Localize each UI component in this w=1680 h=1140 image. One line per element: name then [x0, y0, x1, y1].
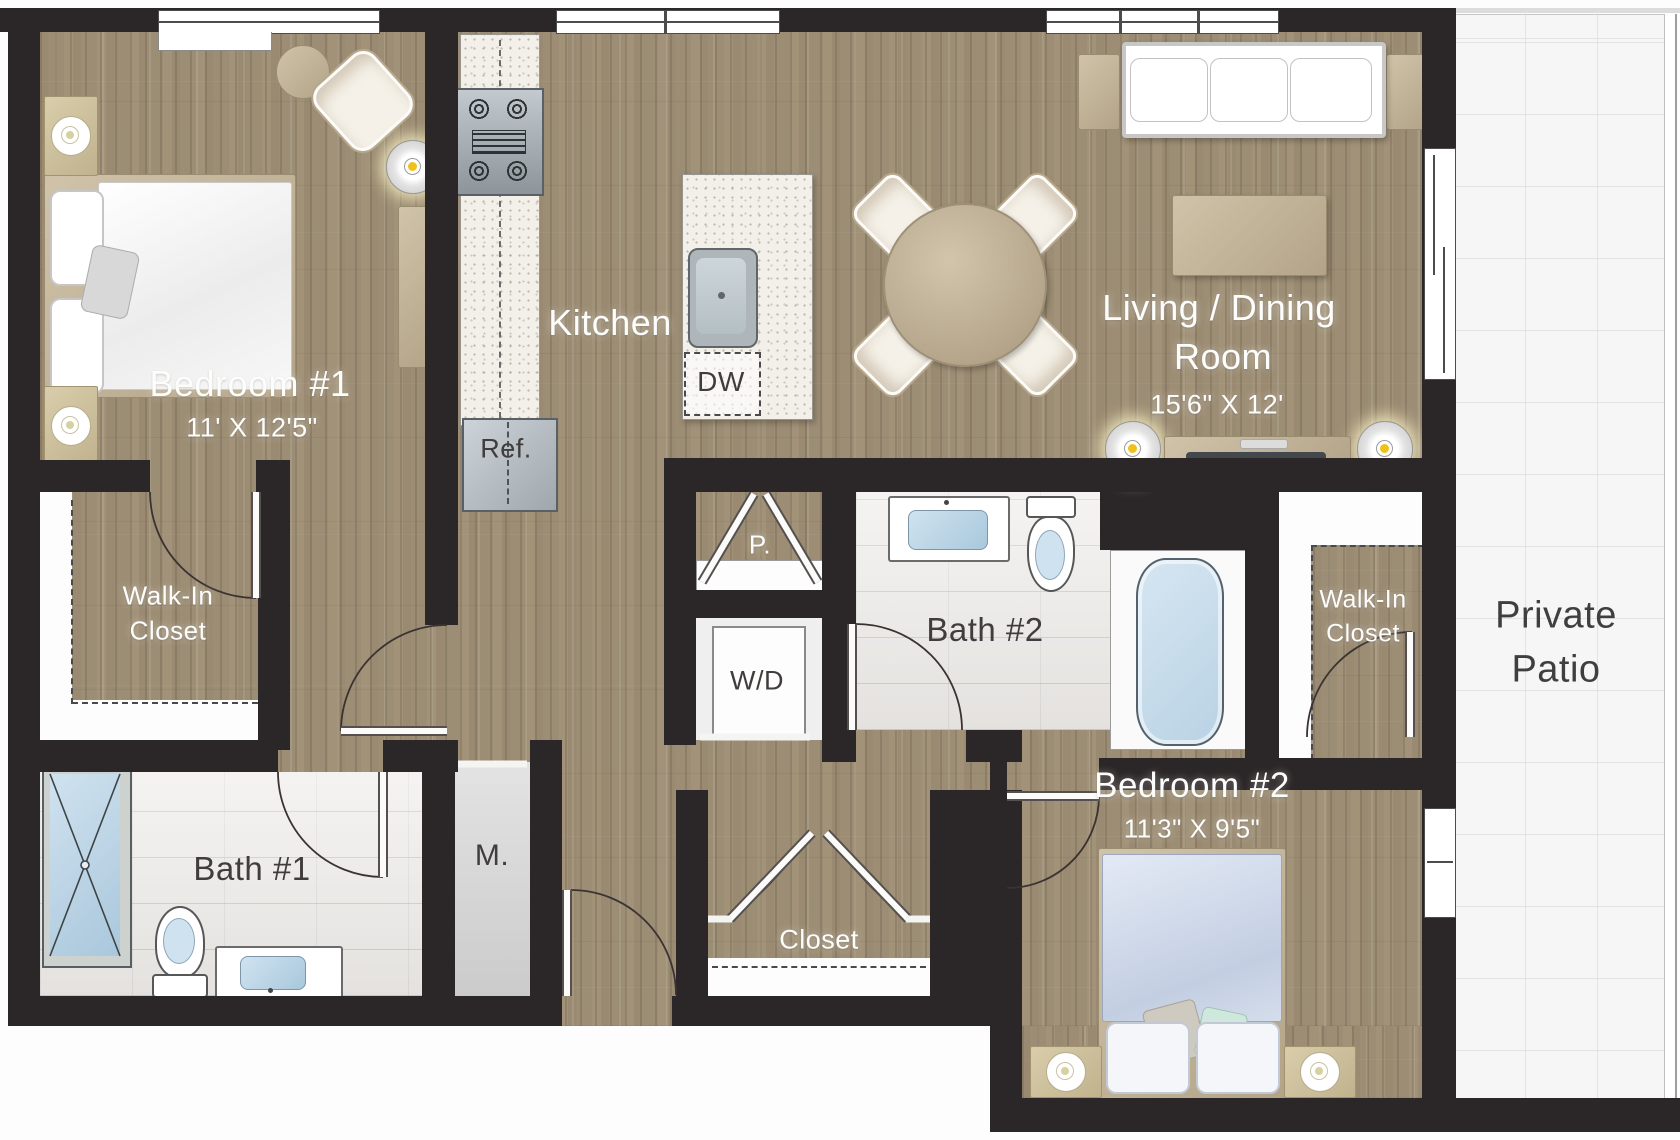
bathtub	[1136, 558, 1224, 746]
wall-bath2-bottom-a	[822, 730, 856, 762]
burner-icon	[466, 158, 492, 184]
tv-remote-tray-top	[1240, 439, 1288, 449]
kitchen-label: Kitchen	[548, 302, 672, 344]
living-dining-label-line1: Living / Dining	[1102, 287, 1336, 329]
wall-living-bottom	[664, 458, 1456, 492]
bed2-lamp-right-center	[1311, 1063, 1327, 1079]
patio-rail	[1664, 14, 1677, 1098]
bedroom1-label: Bedroom #1	[149, 363, 350, 405]
sofa-cushion	[1130, 58, 1208, 122]
living-dining-label-line2: Room	[1174, 336, 1272, 378]
bath1-label: Bath #1	[193, 850, 310, 888]
wall-pantry-laundry-divider	[696, 590, 822, 618]
window-bedroom1-sill	[158, 32, 272, 51]
wall-left	[8, 8, 40, 1026]
burner-icon	[466, 96, 492, 122]
pantry-label: P.	[749, 530, 771, 561]
bath2-faucet-dot	[944, 500, 949, 505]
window-mullion	[664, 11, 667, 33]
wic-left-label-line1: Walk-In	[123, 581, 214, 612]
bed2-lamp-left-center	[1057, 1063, 1073, 1079]
living-speaker-right-dot	[1377, 441, 1392, 456]
wall-tub-closet-divider	[1245, 492, 1279, 758]
dining-table	[883, 203, 1047, 367]
window-mullion	[1119, 11, 1122, 33]
wall-pantry-left	[664, 458, 696, 745]
wall-closet-left	[676, 790, 708, 996]
sliding-door-panel	[1433, 155, 1435, 275]
window-bedroom2	[1424, 808, 1456, 918]
shower-pan	[50, 774, 120, 956]
washer-dryer-label: W/D	[730, 666, 784, 697]
closet-label: Closet	[779, 925, 859, 956]
sofa-cushion	[1210, 58, 1288, 122]
burner-icon	[504, 158, 530, 184]
wic-left-rod-line2	[72, 702, 258, 704]
wall-bath1-top-a	[8, 740, 278, 772]
bedroom1-dimensions: 11' X 12'5"	[186, 413, 317, 444]
bed1-lamp-bottom-center	[62, 417, 78, 433]
wall-bed1-right	[425, 32, 458, 625]
sofa-side-table-right	[1386, 54, 1427, 130]
wic-right-label-line1: Walk-In	[1319, 586, 1406, 615]
wic-left-label-line2: Closet	[130, 616, 207, 647]
bath2-label: Bath #2	[926, 611, 1043, 649]
patio-label-line1: Private	[1495, 595, 1617, 638]
bath1-toilet-tank	[152, 974, 208, 998]
bath2-toilet-lid	[1035, 530, 1065, 580]
patio-floor	[1452, 14, 1666, 1100]
window-mullion	[1197, 11, 1200, 33]
floor-plan: Bedroom #1 11' X 12'5" Kitchen Living / …	[0, 0, 1680, 1140]
living-speaker-left-dot	[1125, 441, 1140, 456]
closet-rod-line	[712, 966, 926, 968]
sliding-door-panel	[1443, 247, 1445, 373]
wic-right-label-line2: Closet	[1326, 620, 1400, 649]
island-sink-drain	[718, 292, 725, 299]
wall-bed2-left	[990, 996, 1022, 1098]
wall-bottom-left	[8, 996, 562, 1026]
window-living	[1046, 10, 1279, 34]
bedroom2-label: Bedroom #2	[1094, 766, 1290, 806]
wall-bottom-bed2	[990, 1098, 1680, 1132]
living-dining-dimensions: 15'6" X 12'	[1150, 390, 1284, 421]
patio-label-line2: Patio	[1511, 649, 1600, 692]
sofa	[1122, 42, 1386, 138]
refrigerator	[462, 418, 558, 512]
window-kitchen	[556, 10, 780, 34]
bed2-blanket	[1102, 854, 1282, 1022]
mechanical-label: M.	[475, 839, 509, 873]
refrigerator-label: Ref.	[480, 434, 532, 465]
window-mullion	[1047, 21, 1278, 23]
stove	[456, 88, 544, 196]
window-bedroom1	[158, 10, 380, 34]
patio-roof-edge	[1452, 8, 1680, 13]
wall-bed1-closet-right	[258, 492, 290, 750]
wic-right-floor	[1311, 545, 1424, 760]
bath1-toilet-lid	[163, 918, 195, 964]
tub-niche-header	[1100, 492, 1247, 550]
wall-bottom-mid	[672, 996, 1022, 1026]
bed1-lamp-top-center	[62, 127, 78, 143]
bath1-faucet-dot	[268, 988, 273, 993]
bedroom2-dimensions: 11'3" X 9'5"	[1124, 814, 1261, 845]
sofa-cushion	[1290, 58, 1372, 122]
wall-m-right	[530, 740, 562, 996]
bath1-sink	[240, 956, 306, 990]
patio-sliding-door	[1424, 148, 1456, 380]
mechanical-closet-floor	[455, 762, 530, 996]
wall-bed1-closet-top-b	[256, 460, 290, 492]
bed2-pillow-right	[1196, 1022, 1280, 1094]
window-mullion	[159, 21, 379, 23]
wall-pantry-right	[822, 458, 856, 730]
wic-left-rod-line	[71, 500, 73, 704]
bed2-pillow-left	[1106, 1022, 1190, 1094]
window-mullion	[557, 21, 779, 23]
wall-closet-right	[930, 790, 1022, 996]
bath2-toilet-tank	[1026, 496, 1076, 518]
closet-shelf	[708, 958, 930, 996]
coffee-table	[1172, 195, 1327, 276]
sofa-side-table-left	[1078, 54, 1120, 130]
window-mullion	[1427, 861, 1453, 863]
bath2-sink	[908, 510, 988, 550]
bed1-floor-lamp-dot	[405, 159, 420, 174]
dishwasher-label: DW	[697, 366, 745, 398]
burner-icon	[504, 96, 530, 122]
stove-grate	[472, 130, 526, 154]
wall-bath1-m-divider	[422, 740, 455, 996]
wall-bed2-top-a	[990, 758, 1007, 790]
wall-bed1-closet-top-a	[8, 460, 150, 492]
